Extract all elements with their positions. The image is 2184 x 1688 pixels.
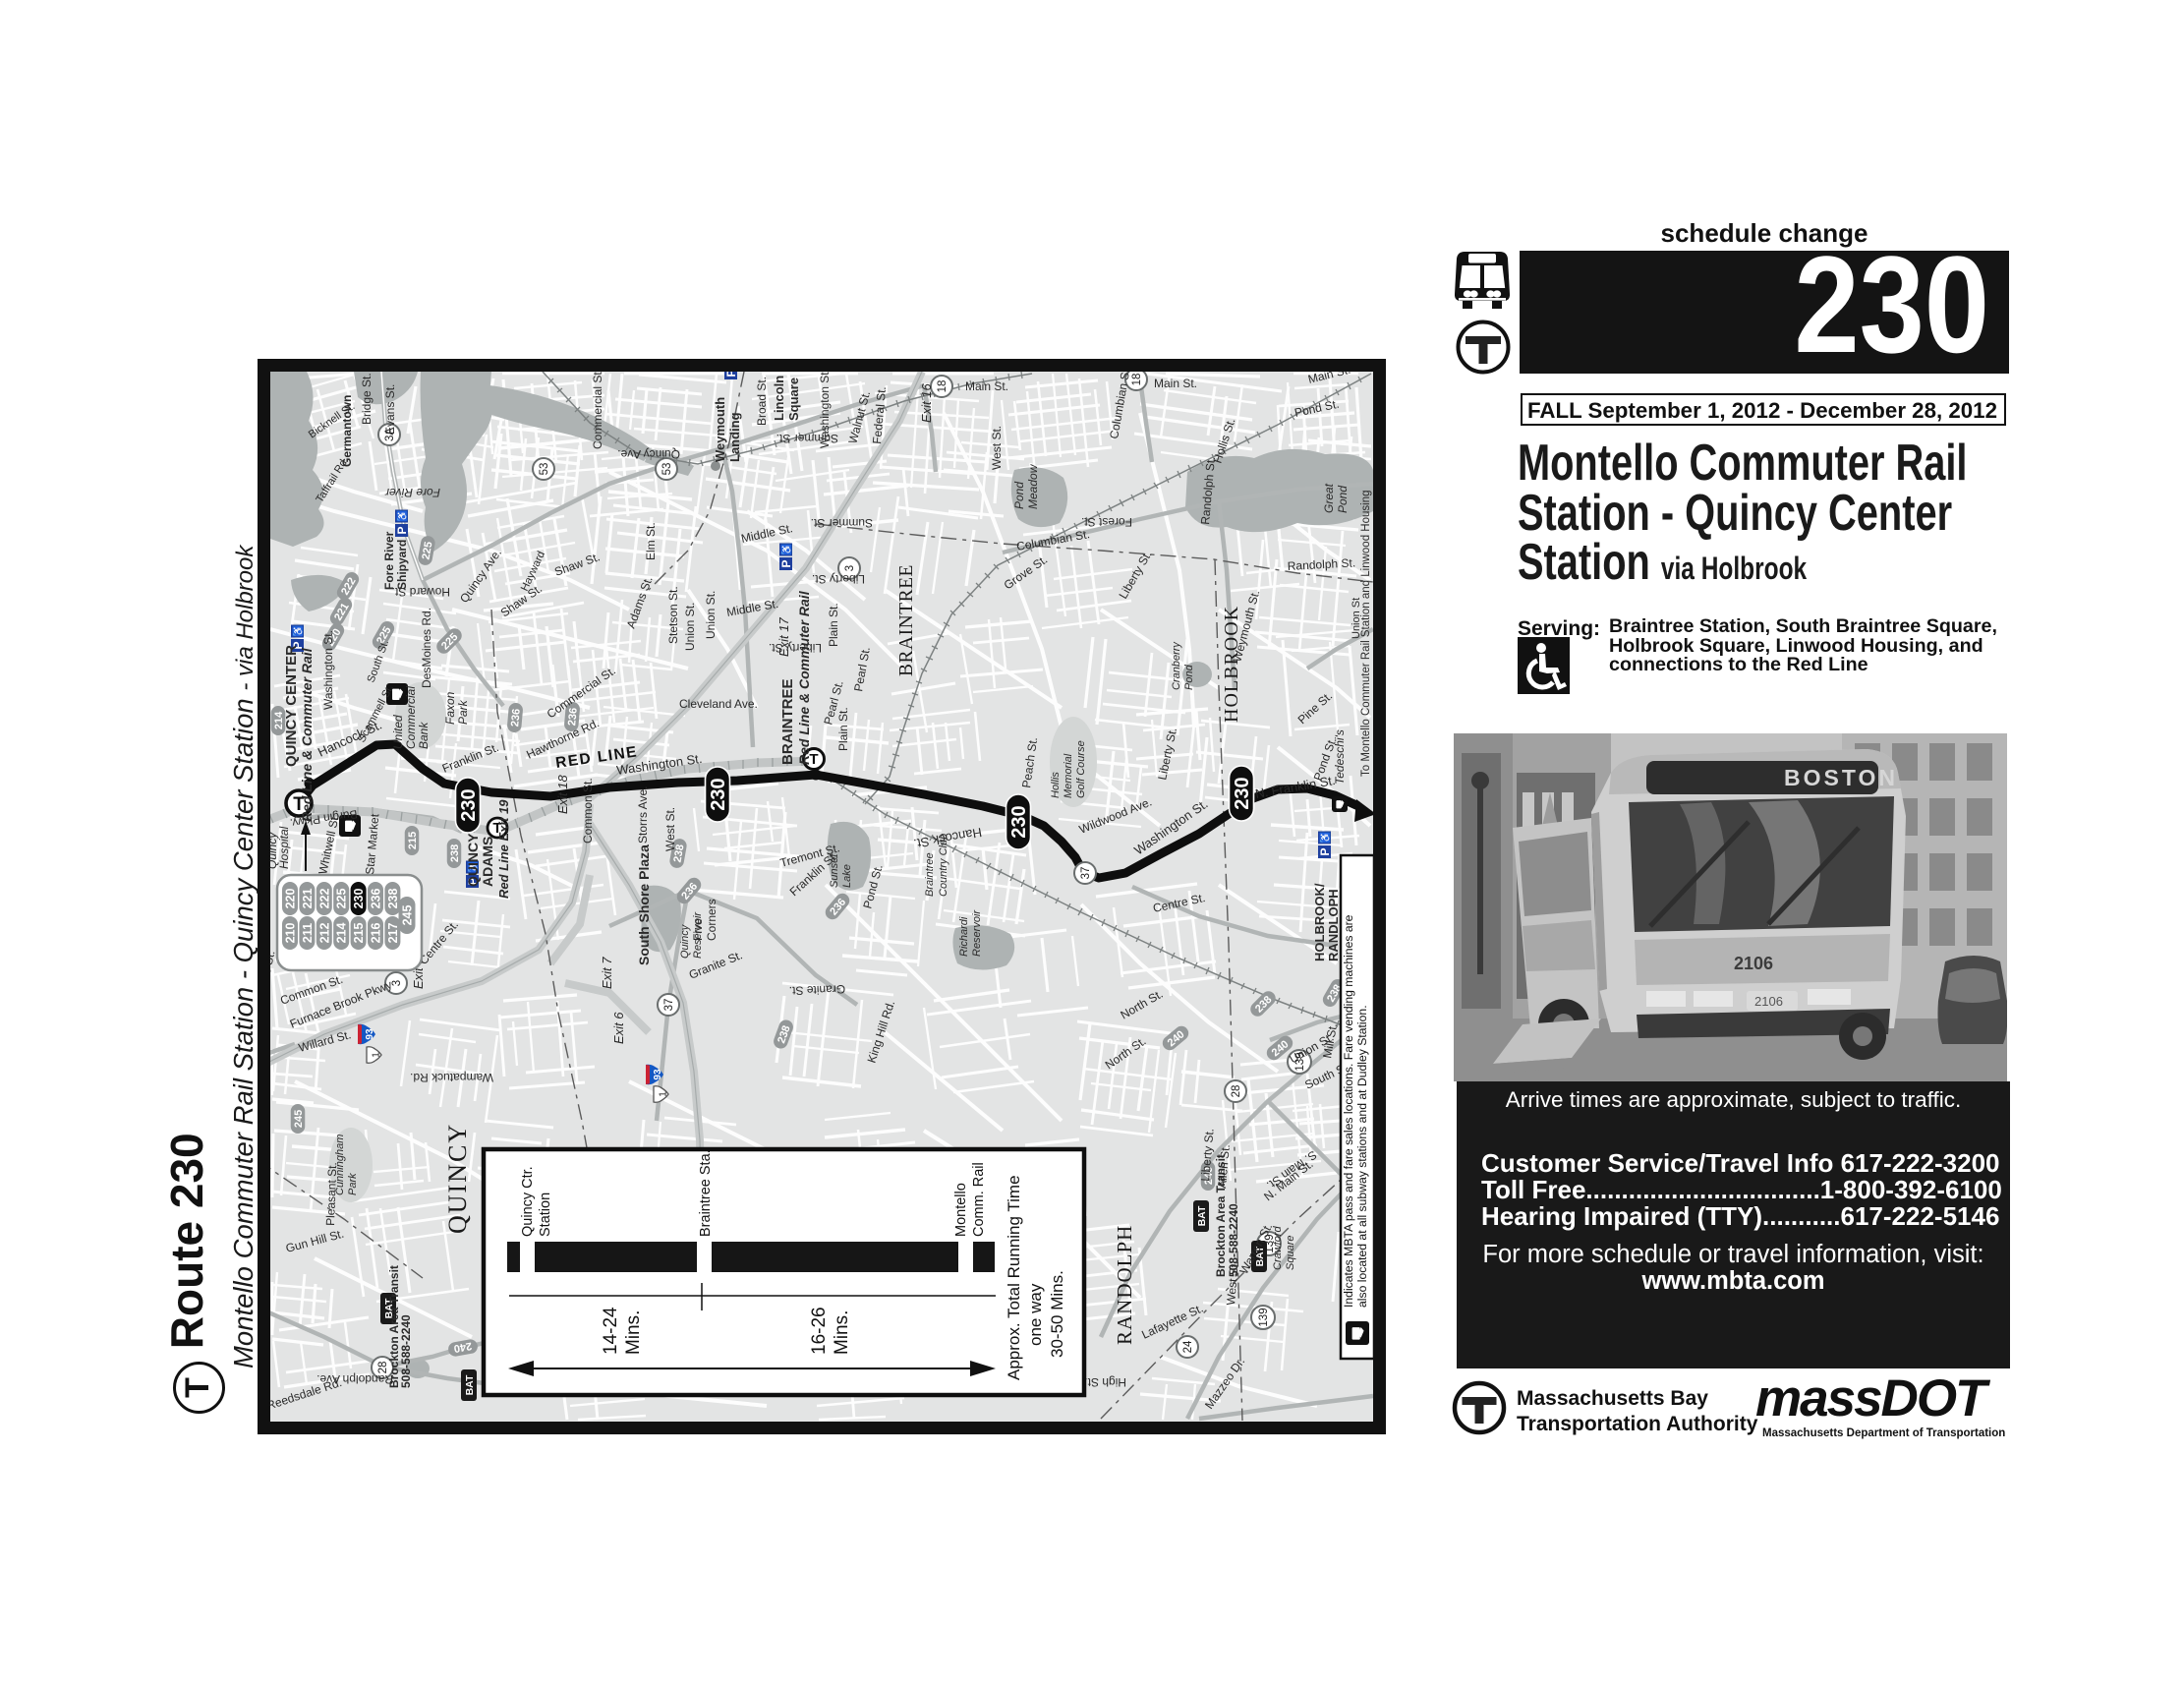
svg-text:216: 216	[370, 923, 383, 944]
svg-text:211: 211	[301, 923, 315, 943]
svg-text:P: P	[395, 526, 409, 534]
svg-text:53: 53	[661, 463, 673, 476]
svg-text:220: 220	[284, 889, 298, 909]
svg-text:221: 221	[301, 889, 315, 909]
svg-text:BAT: BAT	[1196, 1205, 1208, 1226]
svg-text:Golf Course: Golf Course	[1075, 740, 1087, 798]
svg-text:Montello: Montello	[953, 1183, 969, 1237]
svg-text:Red Line & Commuter Rail: Red Line & Commuter Rail	[796, 590, 812, 765]
svg-text:37: 37	[663, 999, 675, 1012]
svg-text:3: 3	[391, 980, 403, 986]
svg-text:Exit 18: Exit 18	[555, 774, 570, 814]
svg-text:Square: Square	[786, 378, 801, 421]
svg-text:Howard St.: Howard St.	[392, 585, 450, 599]
svg-text:18: 18	[1131, 374, 1143, 386]
svg-text:18: 18	[937, 380, 948, 393]
svg-text:Main St.: Main St.	[1154, 377, 1197, 390]
svg-text:Common St.: Common St.	[581, 778, 595, 844]
svg-text:236: 236	[509, 708, 523, 727]
svg-text:Country Club: Country Club	[938, 834, 949, 897]
svg-text:Forest St.: Forest St.	[1081, 515, 1132, 529]
svg-text:210: 210	[284, 923, 298, 944]
svg-text:Storrs Ave.: Storrs Ave.	[636, 786, 650, 844]
svg-text:230: 230	[458, 788, 480, 821]
svg-text:BOSTON: BOSTON	[1784, 765, 1898, 790]
svg-text:West St.: West St.	[990, 426, 1004, 470]
svg-text:Quincy Ctr.: Quincy Ctr.	[520, 1166, 536, 1237]
svg-text:1: 1	[659, 1091, 669, 1097]
svg-text:508-588-2240: 508-588-2240	[399, 1314, 413, 1388]
svg-text:139: 139	[1258, 1308, 1270, 1326]
svg-text:1: 1	[372, 1052, 382, 1058]
svg-text:one way: one way	[1026, 1283, 1045, 1346]
svg-text:Pond: Pond	[1336, 486, 1350, 513]
svg-text:30-50 Mins.: 30-50 Mins.	[1048, 1270, 1066, 1358]
svg-text:Commercial: Commercial	[404, 686, 418, 749]
svg-text:230: 230	[1008, 805, 1030, 838]
svg-text:Park: Park	[347, 1173, 359, 1195]
svg-text:37: 37	[1080, 867, 1092, 880]
svg-text:212: 212	[317, 923, 331, 944]
svg-text:Meadow: Meadow	[1026, 463, 1040, 509]
svg-text:♿: ♿	[396, 510, 409, 522]
svg-text:Reservoir: Reservoir	[971, 909, 983, 957]
svg-text:Wampatuck Rd.: Wampatuck Rd.	[410, 1071, 493, 1084]
svg-text:Summer St.: Summer St.	[811, 516, 873, 530]
svg-text:Broad St.: Broad St.	[755, 377, 769, 426]
svg-text:Pond: Pond	[1183, 664, 1195, 690]
svg-text:Lake: Lake	[841, 864, 853, 888]
svg-text:Five: Five	[691, 918, 705, 941]
svg-text:217: 217	[386, 923, 400, 944]
svg-text:Indicates MBTA pass and fare s: Indicates MBTA pass and fare sales locat…	[1342, 914, 1355, 1308]
svg-text:BRAINTREE: BRAINTREE	[779, 678, 796, 765]
svg-text:238: 238	[386, 889, 400, 909]
svg-text:Station: Station	[538, 1193, 553, 1237]
svg-text:QUINCY CENTER: QUINCY CENTER	[283, 645, 300, 767]
svg-text:P: P	[1318, 847, 1332, 855]
svg-text:Richardi: Richardi	[958, 916, 970, 957]
svg-text:Park: Park	[456, 699, 470, 725]
svg-text:DesMoines Rd.: DesMoines Rd.	[420, 608, 433, 688]
svg-text:93: 93	[653, 1069, 663, 1080]
svg-text:Braintree: Braintree	[924, 852, 936, 897]
svg-text:Exit 6: Exit 6	[611, 1012, 626, 1044]
svg-text:Quincy: Quincy	[679, 923, 691, 959]
svg-text:2106: 2106	[1734, 954, 1773, 973]
svg-text:Elm St.: Elm St.	[644, 522, 658, 560]
svg-text:93: 93	[365, 1028, 375, 1040]
svg-text:Lincoln: Lincoln	[772, 376, 786, 421]
svg-text:♿: ♿	[1319, 832, 1332, 844]
svg-text:215: 215	[407, 832, 419, 849]
svg-text:Exit 7: Exit 7	[600, 957, 614, 989]
svg-text:Faxon: Faxon	[443, 691, 457, 725]
svg-text:High St.: High St.	[1084, 1375, 1126, 1389]
svg-text:Bank: Bank	[417, 722, 431, 749]
svg-text:53: 53	[539, 463, 550, 476]
svg-text:Fore River: Fore River	[384, 486, 440, 499]
svg-text:508-588-2240: 508-588-2240	[1227, 1203, 1240, 1277]
svg-text:West St.: West St.	[663, 807, 677, 851]
svg-text:P: P	[779, 559, 793, 567]
svg-text:222: 222	[317, 889, 331, 909]
svg-text:230: 230	[1232, 777, 1253, 809]
svg-text:230: 230	[352, 889, 366, 909]
svg-text:Union St.: Union St.	[683, 603, 697, 651]
svg-text:South Shore Plaza: South Shore Plaza	[636, 844, 652, 965]
svg-text:Crawford: Crawford	[1272, 1225, 1284, 1270]
svg-text:Weymouth: Weymouth	[713, 397, 727, 462]
svg-text:Union St.: Union St.	[704, 591, 718, 639]
svg-text:Approx. Total Running Time: Approx. Total Running Time	[1005, 1175, 1023, 1380]
svg-text:QUINCY: QUINCY	[443, 1123, 472, 1234]
svg-text:230: 230	[708, 778, 729, 810]
svg-text:14-24: 14-24	[601, 1307, 621, 1355]
svg-text:236: 236	[370, 889, 383, 909]
svg-text:Pleasant St.: Pleasant St.	[323, 1162, 339, 1226]
svg-text:Fore River: Fore River	[382, 531, 396, 590]
svg-text:RANDOLPH: RANDOLPH	[1113, 1225, 1136, 1345]
svg-text:RANDLOPH: RANDLOPH	[1326, 889, 1341, 961]
svg-text:BRAINTREE: BRAINTREE	[896, 564, 917, 676]
svg-text:Landing: Landing	[727, 412, 742, 462]
svg-text:Bridge St.: Bridge St.	[360, 373, 374, 425]
svg-text:214: 214	[335, 923, 349, 944]
svg-text:♿: ♿	[780, 544, 793, 555]
svg-text:Exit 16: Exit 16	[919, 382, 934, 423]
svg-text:Summer St.: Summer St.	[776, 432, 838, 445]
svg-text:Pond: Pond	[1012, 482, 1026, 509]
svg-text:Hospital: Hospital	[277, 826, 291, 869]
svg-text:Square: Square	[1285, 1236, 1296, 1270]
svg-text:Washington St.: Washington St.	[321, 630, 335, 710]
svg-text:Sunset: Sunset	[829, 853, 840, 888]
svg-text:Shipyard: Shipyard	[395, 540, 409, 590]
svg-text:ADAMS: ADAMS	[480, 837, 495, 887]
svg-text:Brockton Area Transit: Brockton Area Transit	[1214, 1154, 1228, 1277]
svg-text:215: 215	[352, 923, 366, 944]
svg-text:Quincy Ave.: Quincy Ave.	[617, 447, 680, 461]
svg-text:Comm. Rail: Comm. Rail	[971, 1162, 987, 1237]
svg-text:BAT: BAT	[464, 1374, 476, 1395]
svg-text:also located at all subway sta: also located at all subway stations and …	[1355, 1005, 1369, 1308]
svg-text:Plain St.: Plain St.	[836, 707, 850, 751]
svg-text:United: United	[391, 715, 405, 749]
svg-text:225: 225	[335, 889, 349, 909]
svg-text:Mins.: Mins.	[623, 1310, 644, 1355]
svg-text:245: 245	[293, 1110, 305, 1128]
svg-text:Mins.: Mins.	[832, 1310, 852, 1355]
svg-text:24: 24	[1182, 1340, 1194, 1353]
svg-text:Red Line Exit 19: Red Line Exit 19	[496, 799, 511, 899]
svg-text:3: 3	[844, 565, 856, 571]
svg-text:♿: ♿	[292, 625, 305, 637]
svg-text:Main St.: Main St.	[965, 379, 1008, 393]
svg-text:To Montello Commuter Rail Stat: To Montello Commuter Rail Station and Li…	[1360, 491, 1372, 778]
svg-text:Plain St.: Plain St.	[827, 603, 840, 647]
svg-text:238: 238	[449, 844, 461, 862]
svg-text:Corners: Corners	[705, 899, 718, 941]
svg-text:245: 245	[401, 905, 415, 926]
svg-text:Hollis: Hollis	[1050, 772, 1062, 798]
svg-text:Liberty St.: Liberty St.	[812, 572, 865, 586]
svg-text:Exit 17: Exit 17	[776, 616, 791, 657]
svg-text:28: 28	[1231, 1085, 1242, 1098]
svg-text:Stetson St.: Stetson St.	[666, 586, 680, 644]
svg-text:Great: Great	[1322, 483, 1336, 513]
svg-text:Tedeschi's: Tedeschi's	[1333, 729, 1347, 785]
svg-text:Braintree Sta.: Braintree Sta.	[698, 1149, 714, 1237]
svg-text:2106: 2106	[1754, 994, 1783, 1009]
svg-text:Commercial St.: Commercial St.	[591, 369, 604, 449]
svg-text:Memorial: Memorial	[1063, 753, 1074, 798]
svg-text:Red Line & Commuter Rail: Red Line & Commuter Rail	[299, 647, 315, 822]
svg-text:Cranberry: Cranberry	[1171, 641, 1182, 690]
svg-text:Cleveland Ave.: Cleveland Ave.	[679, 697, 758, 711]
svg-text:Evans St.: Evans St.	[383, 384, 397, 435]
svg-text:HOLBROOK/: HOLBROOK/	[1312, 883, 1327, 961]
svg-text:Granite St.: Granite St.	[789, 982, 846, 998]
svg-text:QUINCY: QUINCY	[465, 833, 481, 887]
svg-text:16-26: 16-26	[809, 1307, 830, 1355]
